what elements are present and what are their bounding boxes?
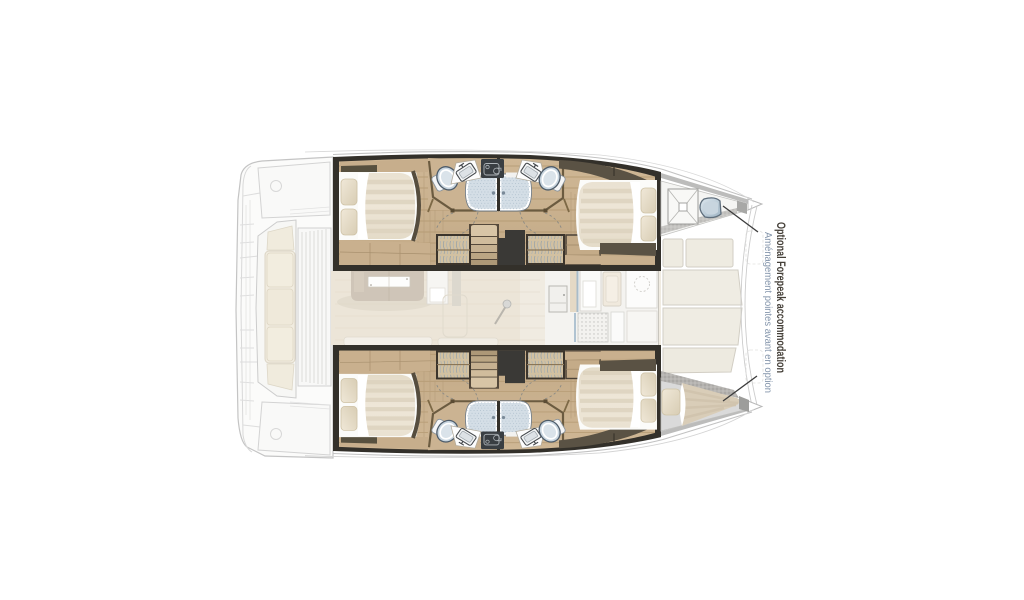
svg-text:Aménagement pointes avant en o: Aménagement pointes avant en option <box>762 232 773 393</box>
svg-text:Optional Forepeak accommodatio: Optional Forepeak accommodation <box>774 222 786 373</box>
